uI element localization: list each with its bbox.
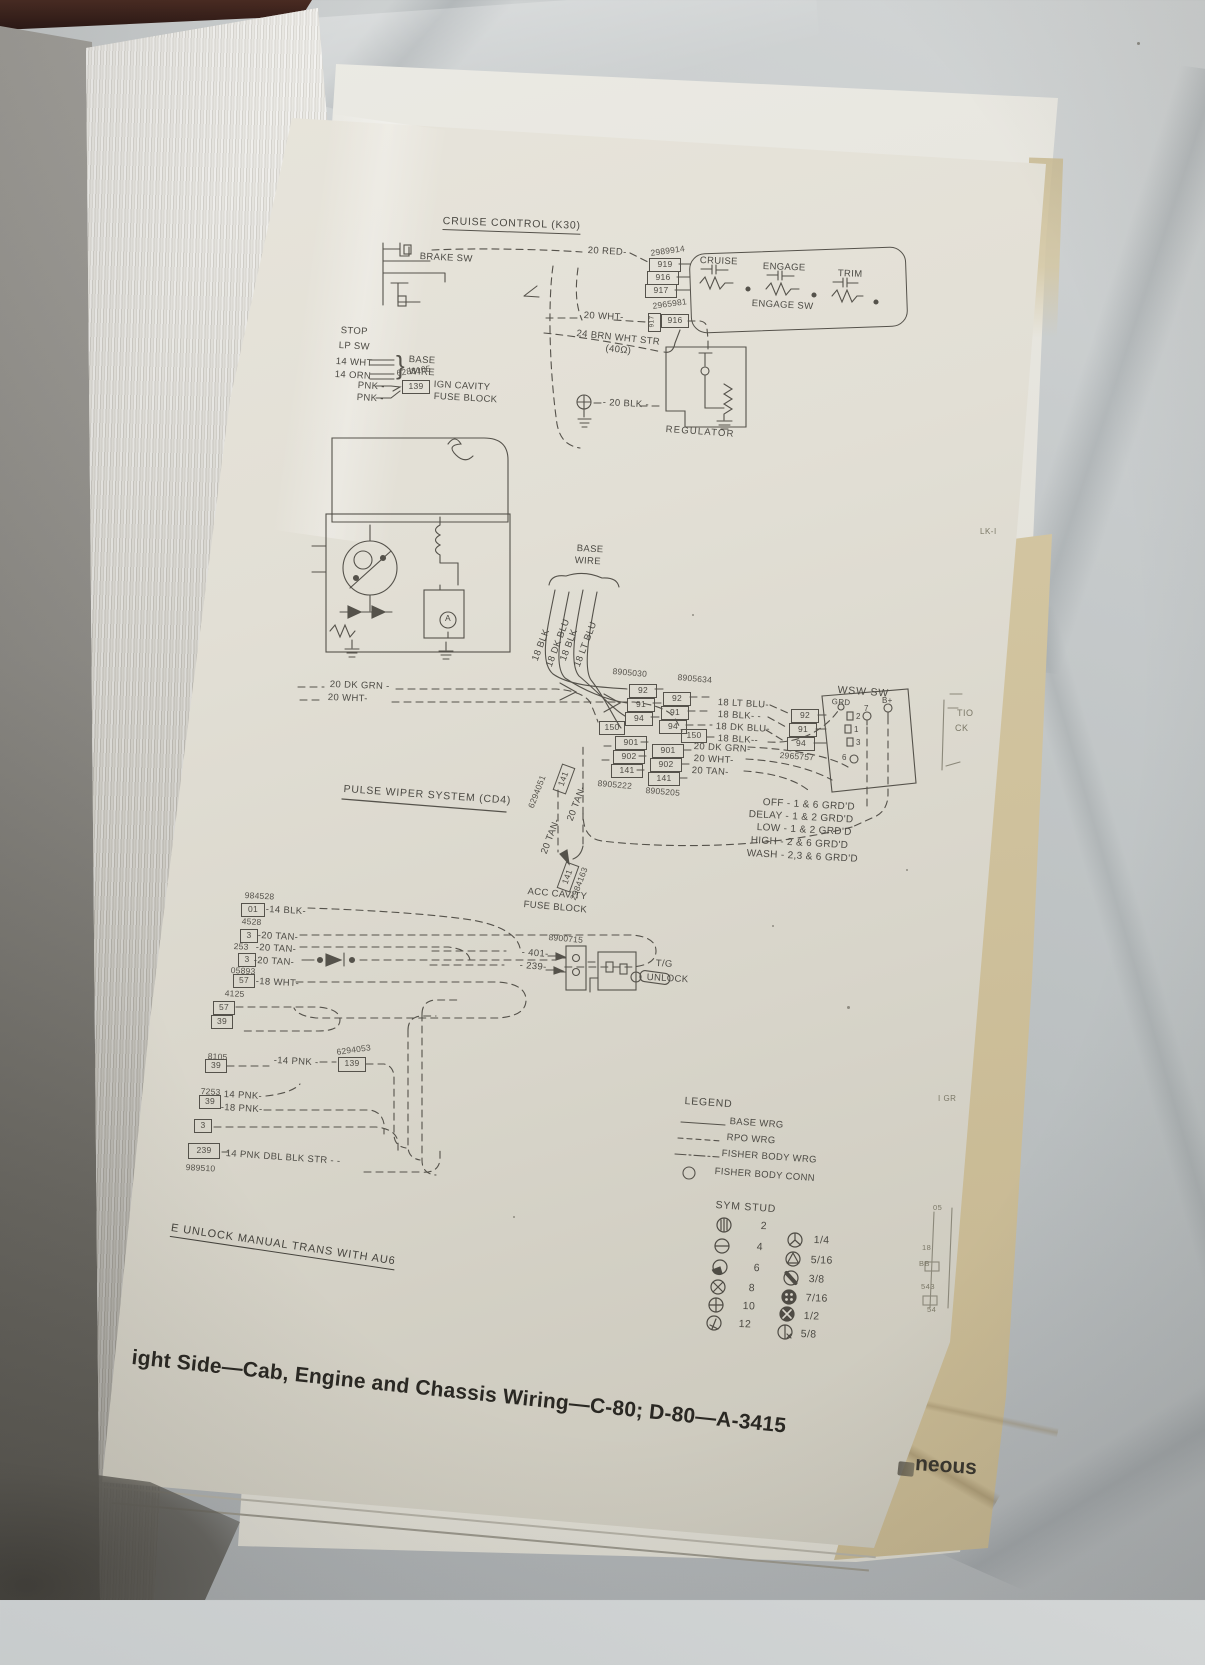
cluster-pin-39b: 39 xyxy=(205,1059,227,1073)
wsw-sq-1: 1 xyxy=(854,725,859,734)
stackC-pin-94: 94 xyxy=(787,737,815,751)
connector-pin-916: 916 xyxy=(647,271,679,285)
cluster-part-4528: 4528 xyxy=(241,917,261,928)
fragment-lk: LK-I xyxy=(980,527,997,536)
stud-num-12: 12 xyxy=(739,1318,752,1330)
cluster-wire-18wht: -18 WHT- xyxy=(255,977,299,990)
stackD-pin-141: 141 xyxy=(611,764,643,778)
left-wire-wht-label: 20 WHT- xyxy=(328,693,368,705)
stud-symbol-glyphs xyxy=(707,1218,802,1339)
lp-sw-label: LP SW xyxy=(338,341,370,354)
wsw-sq-3: 3 xyxy=(856,738,861,747)
stackA-pin-91: 91 xyxy=(627,698,655,712)
stackC-pin-91: 91 xyxy=(789,723,817,737)
sw-trim-label: TRIM xyxy=(838,269,863,281)
cluster-pin-39c: 39 xyxy=(199,1095,221,1109)
stud-frac-12: 1/2 xyxy=(804,1310,820,1323)
stackA-pin-92: 92 xyxy=(629,684,657,698)
left-wire-dkgrn-label: 20 DK GRN - xyxy=(330,680,390,693)
cluster-part-989510: 989510 xyxy=(185,1163,215,1174)
cluster-part-4125: 4125 xyxy=(224,989,244,1000)
paper-speck xyxy=(692,614,694,616)
wire-14-wht-label: 14 WHT xyxy=(335,357,372,370)
stackD-pin-901: 901 xyxy=(615,736,647,750)
fragment-ck: CK xyxy=(955,723,969,733)
stud-frac-14: 1/4 xyxy=(814,1234,830,1247)
stud-frac-716: 7/16 xyxy=(806,1292,828,1305)
stackD-pin-902: 902 xyxy=(613,750,645,764)
marble-speck xyxy=(1137,42,1140,45)
paper-speck xyxy=(847,1006,850,1009)
stackC-pin-92: 92 xyxy=(791,709,819,723)
cluster-pin-39a: 39 xyxy=(211,1015,233,1029)
cluster-pin-139b: 139 xyxy=(338,1057,366,1072)
stud-frac-58: 5/8 xyxy=(801,1328,817,1341)
acc-tg-linework xyxy=(430,946,671,992)
cluster-wire-14pnk-a: -14 PNK - xyxy=(273,1056,318,1069)
base-wire2-label-b: WIRE xyxy=(574,556,601,568)
wire-401-label: - 401- xyxy=(521,948,549,961)
connector-pin-917-side: 917 xyxy=(648,313,661,332)
underlay-fragments-linework xyxy=(923,694,962,1308)
cluster-wire-18pnk: -18 PNK- xyxy=(220,1103,262,1116)
ammeter-a-label: A xyxy=(445,614,451,624)
cluster-wire-20tan-b: -20 TAN- xyxy=(255,943,296,956)
stackE-pin-141: 141 xyxy=(648,772,680,786)
fragment-05: 05 xyxy=(933,1203,942,1212)
wire-20-wht-label: 20 WHT- xyxy=(583,311,623,324)
fragment-18: 18 xyxy=(922,1243,931,1252)
stop-label: STOP xyxy=(340,326,368,338)
sw-cruise-label: CRUISE xyxy=(700,256,738,268)
stud-frac-516: 5/16 xyxy=(811,1254,833,1267)
stud-num-10: 10 xyxy=(743,1300,756,1312)
wsw-pin-bplus: B+ xyxy=(882,696,893,705)
cluster-pin-239: 239 xyxy=(188,1143,220,1159)
cluster-pin-57a: 57 xyxy=(233,974,255,988)
paper-speck xyxy=(906,869,908,871)
cluster-wire-20tan-c: -20 TAN- xyxy=(253,956,294,969)
stud-num-4: 4 xyxy=(757,1241,764,1253)
cluster-pin-57b: 57 xyxy=(213,1001,235,1015)
cluster-wire-14pnk-b: 14 PNK- xyxy=(223,1090,262,1103)
pin-150a: 150 xyxy=(599,721,625,735)
cluster-part-984528: 984528 xyxy=(244,891,274,902)
sw-engage-label: ENGAGE xyxy=(763,262,806,274)
stackA-pin-94: 94 xyxy=(625,712,653,726)
stackB-pin-92: 92 xyxy=(663,692,691,706)
stud-frac-38: 3/8 xyxy=(809,1273,825,1286)
paper-speck xyxy=(772,925,774,927)
grd-label: GRD xyxy=(831,697,850,707)
wsw-pin-6: 6 xyxy=(842,753,847,762)
stackE-pin-902: 902 xyxy=(650,758,682,772)
cluster-wire-14blk: -14 BLK- xyxy=(265,905,306,918)
photo-of-wiring-diagram-book: { "cruise": { "title": "CRUISE CONTROL (… xyxy=(0,0,1205,1600)
connector-pin-139a: 139 xyxy=(402,380,430,394)
fragment-tio: TIO xyxy=(957,708,974,718)
cluster-pin-01: 01 xyxy=(241,903,265,917)
stud-num-8: 8 xyxy=(749,1282,756,1294)
wire-239-label: - 239- xyxy=(519,961,547,974)
connector-pin-916b: 916 xyxy=(661,314,689,328)
tg-label: T/G xyxy=(655,959,672,971)
pnk-label-2: PNK - xyxy=(356,393,384,405)
fragment-bb: BB xyxy=(919,1259,930,1268)
pin-917-side-label: 917 xyxy=(648,316,655,328)
low-wire-label-3: 20 TAN- xyxy=(691,766,728,779)
wsw-pin-7: 7 xyxy=(864,704,869,713)
paper-speck xyxy=(513,1216,515,1218)
cluster-pin-3c: 3 xyxy=(194,1119,212,1133)
connector-pin-917: 917 xyxy=(645,284,677,298)
fragment-54: 54 xyxy=(927,1305,936,1314)
stackB-pin-91: 91 xyxy=(661,706,689,720)
underlay-page-fragment: neous xyxy=(914,1452,977,1480)
unlock-label: UNLOCK xyxy=(646,973,688,986)
stackE-pin-901: 901 xyxy=(652,744,684,758)
stud-num-2: 2 xyxy=(761,1220,768,1232)
wiper-motor-linework xyxy=(312,438,510,659)
wire-20-red-label: 20 RED- xyxy=(587,246,626,259)
stud-num-6: 6 xyxy=(754,1262,761,1274)
underlay-fragment-cut-letters xyxy=(897,1461,914,1477)
wsw-sq-2: 2 xyxy=(856,712,861,721)
fragment-543: 543 xyxy=(921,1282,935,1291)
cluster-part-253: 253 xyxy=(233,942,248,953)
connector-pin-919: 919 xyxy=(649,258,681,272)
fragment-igr: I GR xyxy=(938,1094,956,1103)
